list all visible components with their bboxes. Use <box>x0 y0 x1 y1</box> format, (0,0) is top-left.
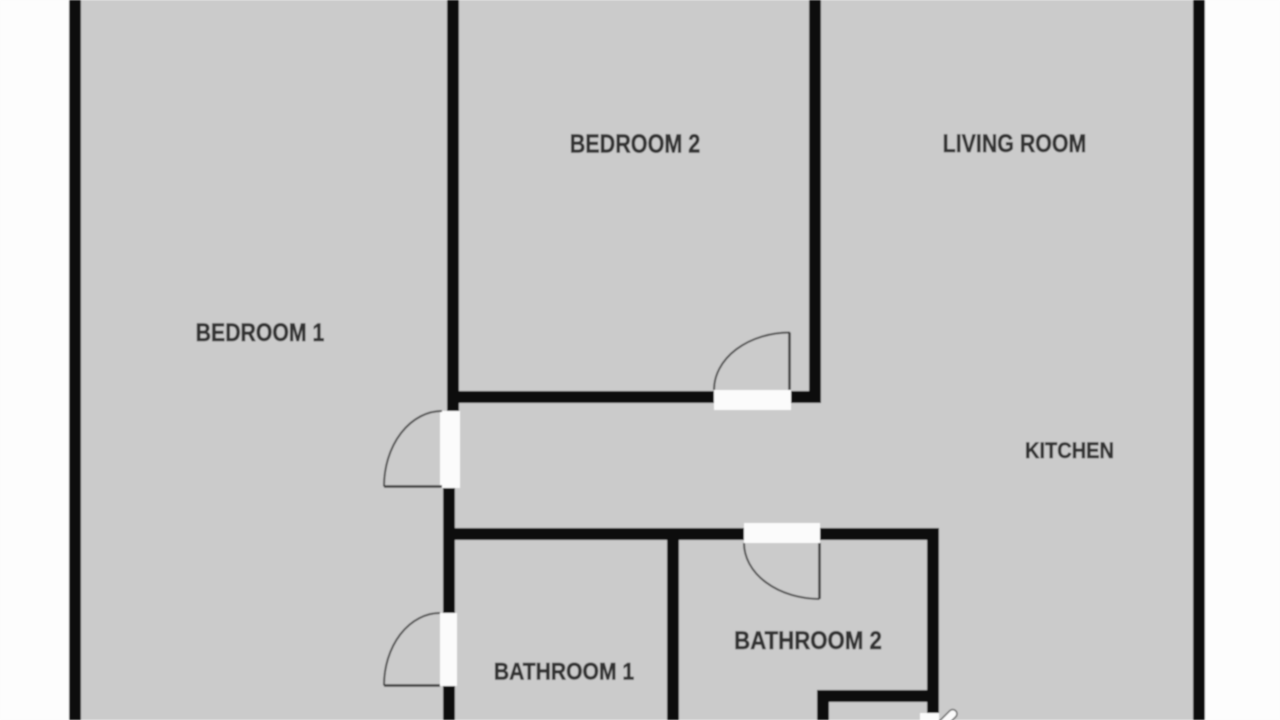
svg-text:BATHROOM 1: BATHROOM 1 <box>494 658 634 684</box>
svg-text:BATHROOM 2: BATHROOM 2 <box>734 627 882 654</box>
svg-text:LIVING ROOM: LIVING ROOM <box>943 129 1087 157</box>
svg-text:KITCHEN: KITCHEN <box>1025 438 1114 463</box>
svg-text:BEDROOM 1: BEDROOM 1 <box>196 318 325 346</box>
svg-text:BEDROOM 2: BEDROOM 2 <box>570 130 701 159</box>
